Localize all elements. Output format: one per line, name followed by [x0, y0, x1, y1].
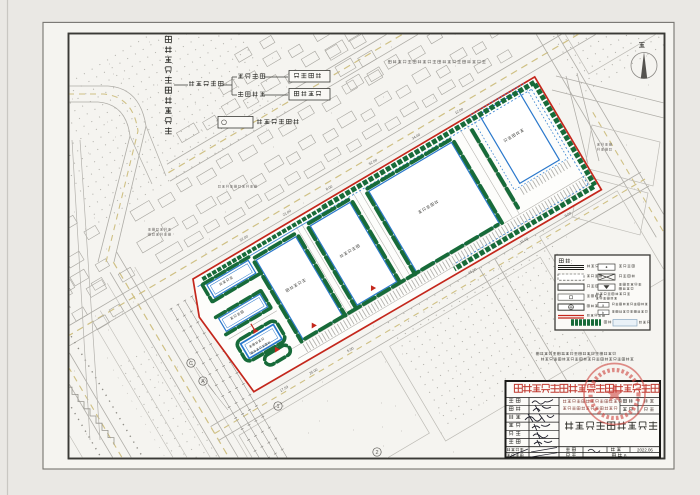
svg-text:b: b [602, 311, 604, 315]
svg-text::: : [571, 260, 572, 266]
svg-text:2: 2 [375, 450, 378, 456]
svg-text:2022.06: 2022.06 [637, 448, 653, 453]
svg-text:1: 1 [276, 404, 279, 410]
svg-text:a: a [602, 303, 604, 307]
svg-text:A: A [201, 379, 205, 385]
svg-text:C: C [189, 361, 193, 367]
